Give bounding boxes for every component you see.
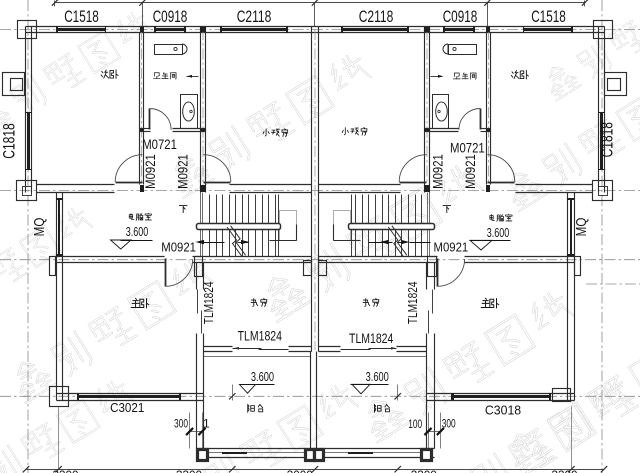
svg-text:C1818: C1818 xyxy=(0,123,19,158)
svg-text:MQ: MQ xyxy=(573,218,590,237)
svg-text:C3021: C3021 xyxy=(110,401,144,415)
svg-text:C3018: C3018 xyxy=(485,403,521,418)
svg-text:MQ: MQ xyxy=(31,218,48,237)
svg-text:C2118: C2118 xyxy=(237,7,272,26)
svg-text:M0921: M0921 xyxy=(434,240,469,255)
svg-text:M0921: M0921 xyxy=(161,240,196,255)
svg-text:3.600: 3.600 xyxy=(126,225,149,239)
svg-text:3300: 3300 xyxy=(411,468,437,473)
svg-text:M0921: M0921 xyxy=(142,154,158,189)
svg-text:3300: 3300 xyxy=(176,468,202,473)
svg-text:M0921: M0921 xyxy=(175,154,191,189)
svg-text:100: 100 xyxy=(408,417,422,431)
svg-text:3300: 3300 xyxy=(53,468,79,473)
svg-text:3.600: 3.600 xyxy=(366,370,389,384)
svg-text:C2118: C2118 xyxy=(359,7,394,26)
svg-text:M0921: M0921 xyxy=(462,154,478,189)
svg-text:M0921: M0921 xyxy=(429,154,445,189)
svg-text:C1518: C1518 xyxy=(64,7,99,26)
svg-text:TLM1824: TLM1824 xyxy=(238,329,283,344)
svg-text:TLM1824: TLM1824 xyxy=(349,331,394,346)
svg-text:300: 300 xyxy=(174,416,188,430)
svg-text:3300: 3300 xyxy=(552,468,578,473)
svg-text:M0721: M0721 xyxy=(450,140,485,156)
svg-text:3.600: 3.600 xyxy=(487,226,510,240)
svg-text:TLM1824: TLM1824 xyxy=(405,281,420,324)
svg-text:C1518: C1518 xyxy=(531,7,566,26)
svg-text:C0918: C0918 xyxy=(443,7,478,26)
svg-text:3000: 3000 xyxy=(287,468,313,473)
svg-text:3.600: 3.600 xyxy=(251,370,274,384)
svg-text:C0918: C0918 xyxy=(153,7,188,26)
svg-text:M0721: M0721 xyxy=(142,136,177,152)
svg-text:TLM1824: TLM1824 xyxy=(201,282,216,325)
svg-text:C1818: C1818 xyxy=(598,122,617,157)
